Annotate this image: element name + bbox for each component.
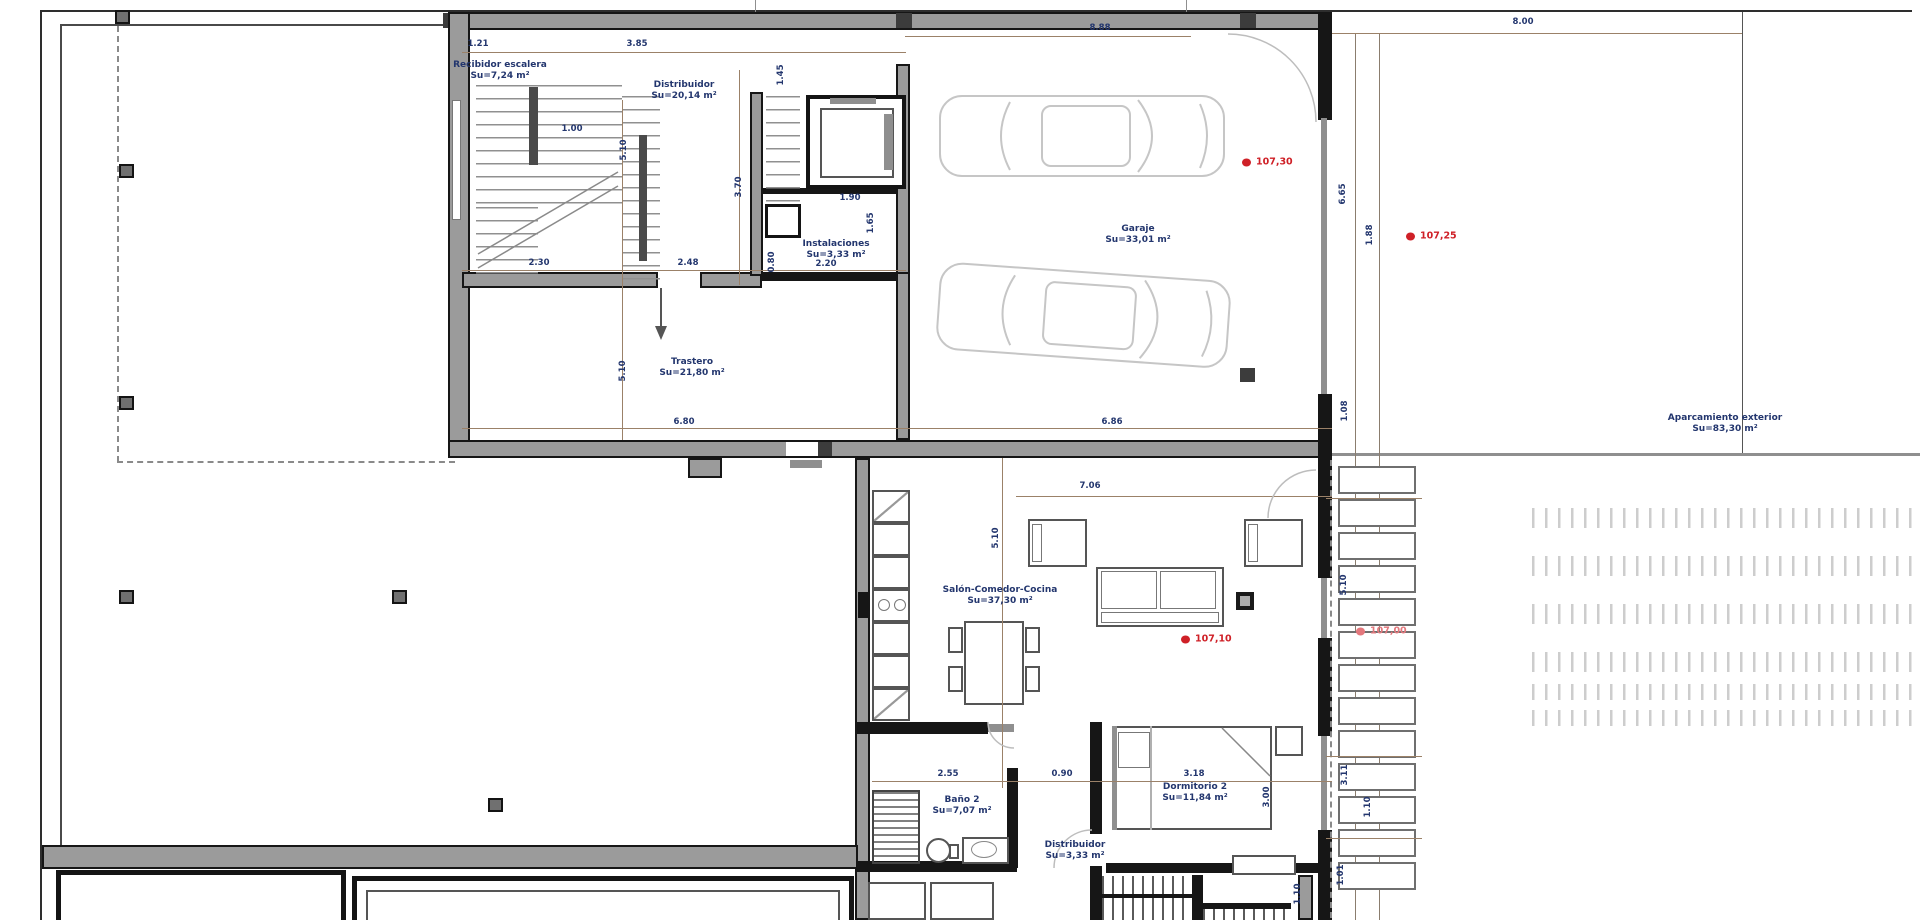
setback-dashed-line <box>117 461 455 463</box>
room-label-distribuidor2: Distribuidor Su=3,33 m² <box>1045 840 1106 862</box>
room-area: Su=7,07 m² <box>932 806 991 817</box>
wall <box>762 272 910 281</box>
room-area: Su=37,30 m² <box>943 596 1058 607</box>
level-value: 107,00 <box>1370 626 1407 637</box>
plot-boundary-left <box>40 10 42 920</box>
dimension: 8.00 <box>1513 17 1534 27</box>
dimension: 1.90 <box>840 193 861 203</box>
dim-line <box>462 428 1332 429</box>
ground-hatch <box>1532 556 1918 576</box>
ground-hatch <box>1532 652 1918 672</box>
dimension: 1.88 <box>1365 225 1375 246</box>
wall <box>448 440 1332 458</box>
step <box>1338 532 1416 560</box>
kitchen-unit <box>872 622 910 655</box>
level-marker: 107,10 <box>1181 634 1232 645</box>
dimension: 1.01 <box>1336 865 1346 886</box>
wall <box>42 845 858 869</box>
step <box>1338 829 1416 857</box>
dimension: 5.10 <box>619 140 629 161</box>
room-area: Su=20,14 m² <box>651 91 716 102</box>
axis-tick <box>1186 0 1187 12</box>
plot-inner-left <box>60 24 62 845</box>
stair-flight <box>476 85 622 207</box>
room-label-bano2: Baño 2 Su=7,07 m² <box>932 795 991 817</box>
axis-tick <box>755 0 756 12</box>
room-name: Aparcamiento exterior <box>1668 413 1782 424</box>
plot-boundary-right <box>1742 12 1743 455</box>
column <box>119 590 134 604</box>
dim-line <box>1002 458 1003 788</box>
dimension: 3.85 <box>627 39 648 49</box>
room-outline <box>56 870 346 920</box>
dimension: 3.00 <box>1262 787 1272 808</box>
dimension: 6.80 <box>674 417 695 427</box>
kitchen-counter <box>872 490 910 722</box>
step <box>1338 565 1416 593</box>
dimension: 3.18 <box>1184 769 1205 779</box>
stair-rail <box>1102 894 1192 898</box>
step <box>1338 598 1416 626</box>
elevator-door <box>884 114 893 170</box>
retaining-line <box>1332 453 1920 456</box>
dimension: 7.06 <box>1080 481 1101 491</box>
dim-line <box>1326 498 1422 499</box>
room-name: Distribuidor <box>1045 840 1106 851</box>
column <box>392 590 407 604</box>
column <box>115 10 130 24</box>
sofa-cushion <box>1101 571 1157 609</box>
level-dot-icon <box>1181 635 1190 643</box>
room-area: Su=33,01 m² <box>1105 235 1170 246</box>
threshold <box>790 460 822 468</box>
room-label-recibidor: Recibidor escalera Su=7,24 m² <box>453 60 547 82</box>
room-name: Instalaciones <box>802 239 869 250</box>
wall <box>1192 875 1203 920</box>
dim-line <box>462 270 906 271</box>
dimension: 3.11 <box>1340 765 1350 786</box>
column <box>1240 368 1255 382</box>
room-label-dormitorio2: Dormitorio 2 Su=11,84 m² <box>1162 782 1227 804</box>
dimension: 1.65 <box>866 213 876 234</box>
step <box>1338 499 1416 527</box>
level-value: 107,30 <box>1256 157 1293 168</box>
room-name: Distribuidor <box>651 80 716 91</box>
stair-flight-down <box>1203 909 1291 920</box>
room-area: Su=7,24 m² <box>453 71 547 82</box>
toilet <box>926 838 951 863</box>
column <box>119 164 134 178</box>
wall <box>448 12 1332 30</box>
bed-headboard <box>1112 726 1117 830</box>
dimension: 1.00 <box>562 124 583 134</box>
pillow <box>1118 732 1150 768</box>
room-name: Recibidor escalera <box>453 60 547 71</box>
sink-basin <box>971 841 997 858</box>
boundary-dashed <box>1330 460 1332 918</box>
ground-hatch <box>1532 508 1918 528</box>
level-value: 107,25 <box>1420 231 1457 242</box>
elevator-cabin <box>820 108 894 178</box>
dim-line <box>1016 496 1332 497</box>
dimension: 1.45 <box>776 65 786 86</box>
room-area: Su=11,84 m² <box>1162 793 1227 804</box>
window <box>1321 736 1327 830</box>
room-name: Salón-Comedor-Cocina <box>943 585 1058 596</box>
dimension: 0.90 <box>1052 769 1073 779</box>
room-area: Su=3,33 m² <box>1045 851 1106 862</box>
dimension: 3.70 <box>734 177 744 198</box>
dimension: 1.21 <box>468 39 489 49</box>
room-label-trastero: Trastero Su=21,80 m² <box>659 357 724 379</box>
door-leaf <box>988 724 1014 732</box>
dimension: 2.48 <box>678 258 699 268</box>
drawing-overlay <box>0 0 1920 920</box>
stair-flight <box>766 96 800 202</box>
wall <box>896 272 910 440</box>
armchair-arm <box>1248 524 1258 562</box>
pillar <box>688 458 722 478</box>
window <box>1232 855 1296 875</box>
stair-flight-down <box>1102 876 1192 920</box>
kitchen-unit <box>872 589 910 622</box>
kitchen-unit <box>872 655 910 688</box>
level-dot-icon <box>1406 232 1415 240</box>
column <box>119 396 134 410</box>
dim-line <box>872 781 1332 782</box>
step <box>1338 664 1416 692</box>
dining-table <box>964 621 1024 705</box>
garage-door <box>1321 118 1327 396</box>
level-dot-icon <box>1242 158 1251 166</box>
column <box>1240 13 1256 28</box>
wall-fixture <box>858 592 870 618</box>
dimension: 6.65 <box>1338 184 1348 205</box>
column <box>896 13 912 28</box>
stair-flight <box>476 207 538 285</box>
room-label-aparcamiento: Aparcamiento exterior Su=83,30 m² <box>1668 413 1782 435</box>
step <box>1338 730 1416 758</box>
door-direction-arrow <box>655 288 667 340</box>
dimension: 1.08 <box>1340 401 1350 422</box>
column <box>818 442 832 456</box>
step <box>1338 697 1416 725</box>
door-opening <box>786 442 820 456</box>
chair <box>948 666 963 692</box>
dim-line <box>1326 838 1422 839</box>
wall <box>1106 863 1234 873</box>
sofa-back <box>1101 612 1219 623</box>
kitchen-unit <box>872 688 910 721</box>
window <box>1321 578 1327 638</box>
sofa-cushion <box>1160 571 1216 609</box>
stair-rail <box>529 87 538 165</box>
dimension: 5.10 <box>618 361 628 382</box>
fireplace <box>1236 592 1254 610</box>
dimension: 6.86 <box>1102 417 1123 427</box>
step <box>1338 862 1416 890</box>
dim-line <box>1332 33 1742 34</box>
room-area: Su=3,33 m² <box>802 250 869 261</box>
ground-hatch <box>1532 684 1918 700</box>
bed-line <box>1150 726 1152 830</box>
level-marker: 107,30 <box>1242 157 1293 168</box>
room-label-salon: Salón-Comedor-Cocina Su=37,30 m² <box>943 585 1058 607</box>
room-label-distribuidor: Distribuidor Su=20,14 m² <box>651 80 716 102</box>
dim-line <box>1326 756 1422 757</box>
dimension: 2.30 <box>529 258 550 268</box>
chair <box>948 627 963 653</box>
kitchen-unit <box>872 556 910 589</box>
room-name: Garaje <box>1105 224 1170 235</box>
stair-rail <box>639 135 647 261</box>
room-name: Trastero <box>659 357 724 368</box>
wall <box>1318 394 1332 458</box>
car <box>940 96 1224 176</box>
toilet-tank <box>949 844 959 859</box>
wall <box>1090 866 1102 920</box>
dim-line <box>462 52 906 53</box>
room-area: Su=21,80 m² <box>659 368 724 379</box>
dimension: 2.55 <box>938 769 959 779</box>
elevator-door <box>830 98 876 104</box>
level-dot-icon <box>1356 627 1365 635</box>
dimension: 1.10 <box>1363 797 1373 818</box>
chair <box>1025 666 1040 692</box>
sink-bowl <box>878 599 890 611</box>
room-name: Baño 2 <box>932 795 991 806</box>
room-inner-outline <box>366 890 840 920</box>
dimension: 5.10 <box>1339 575 1349 596</box>
dimension: 8.88 <box>1090 23 1111 33</box>
level-marker: 107,25 <box>1406 231 1457 242</box>
room-name: Dormitorio 2 <box>1162 782 1227 793</box>
step <box>1338 466 1416 494</box>
kitchen-unit <box>872 523 910 556</box>
fixture <box>868 882 926 920</box>
wardrobe <box>872 790 920 864</box>
wall <box>1318 12 1332 120</box>
ground-hatch <box>1532 710 1918 726</box>
car <box>936 262 1231 368</box>
level-marker: 107,00 <box>1356 626 1407 637</box>
dimension: 0.80 <box>767 252 777 273</box>
shaft <box>765 204 801 238</box>
wall <box>1090 722 1102 834</box>
room-label-instalaciones: Instalaciones Su=3,33 m² <box>802 239 869 261</box>
step <box>1338 796 1416 824</box>
dim-line <box>905 36 1191 37</box>
room-label-garaje: Garaje Su=33,01 m² <box>1105 224 1170 246</box>
column <box>488 798 503 812</box>
armchair-arm <box>1032 524 1042 562</box>
nightstand <box>1275 726 1303 756</box>
sink-bowl <box>894 599 906 611</box>
room-area: Su=83,30 m² <box>1668 424 1782 435</box>
ground-hatch <box>1532 604 1918 624</box>
kitchen-unit <box>872 490 910 523</box>
chair <box>1025 627 1040 653</box>
fixture <box>930 882 994 920</box>
exterior-steps <box>1338 466 1418 920</box>
dimension: 1.10 <box>1293 884 1303 905</box>
wall <box>855 722 988 734</box>
dimension: 5.10 <box>991 528 1001 549</box>
level-value: 107,10 <box>1195 634 1232 645</box>
window <box>452 100 461 220</box>
wall <box>750 92 763 276</box>
floor-plan: 1.21 3.85 8.88 8.00 1.00 5.10 3.70 2.30 … <box>0 0 1920 920</box>
